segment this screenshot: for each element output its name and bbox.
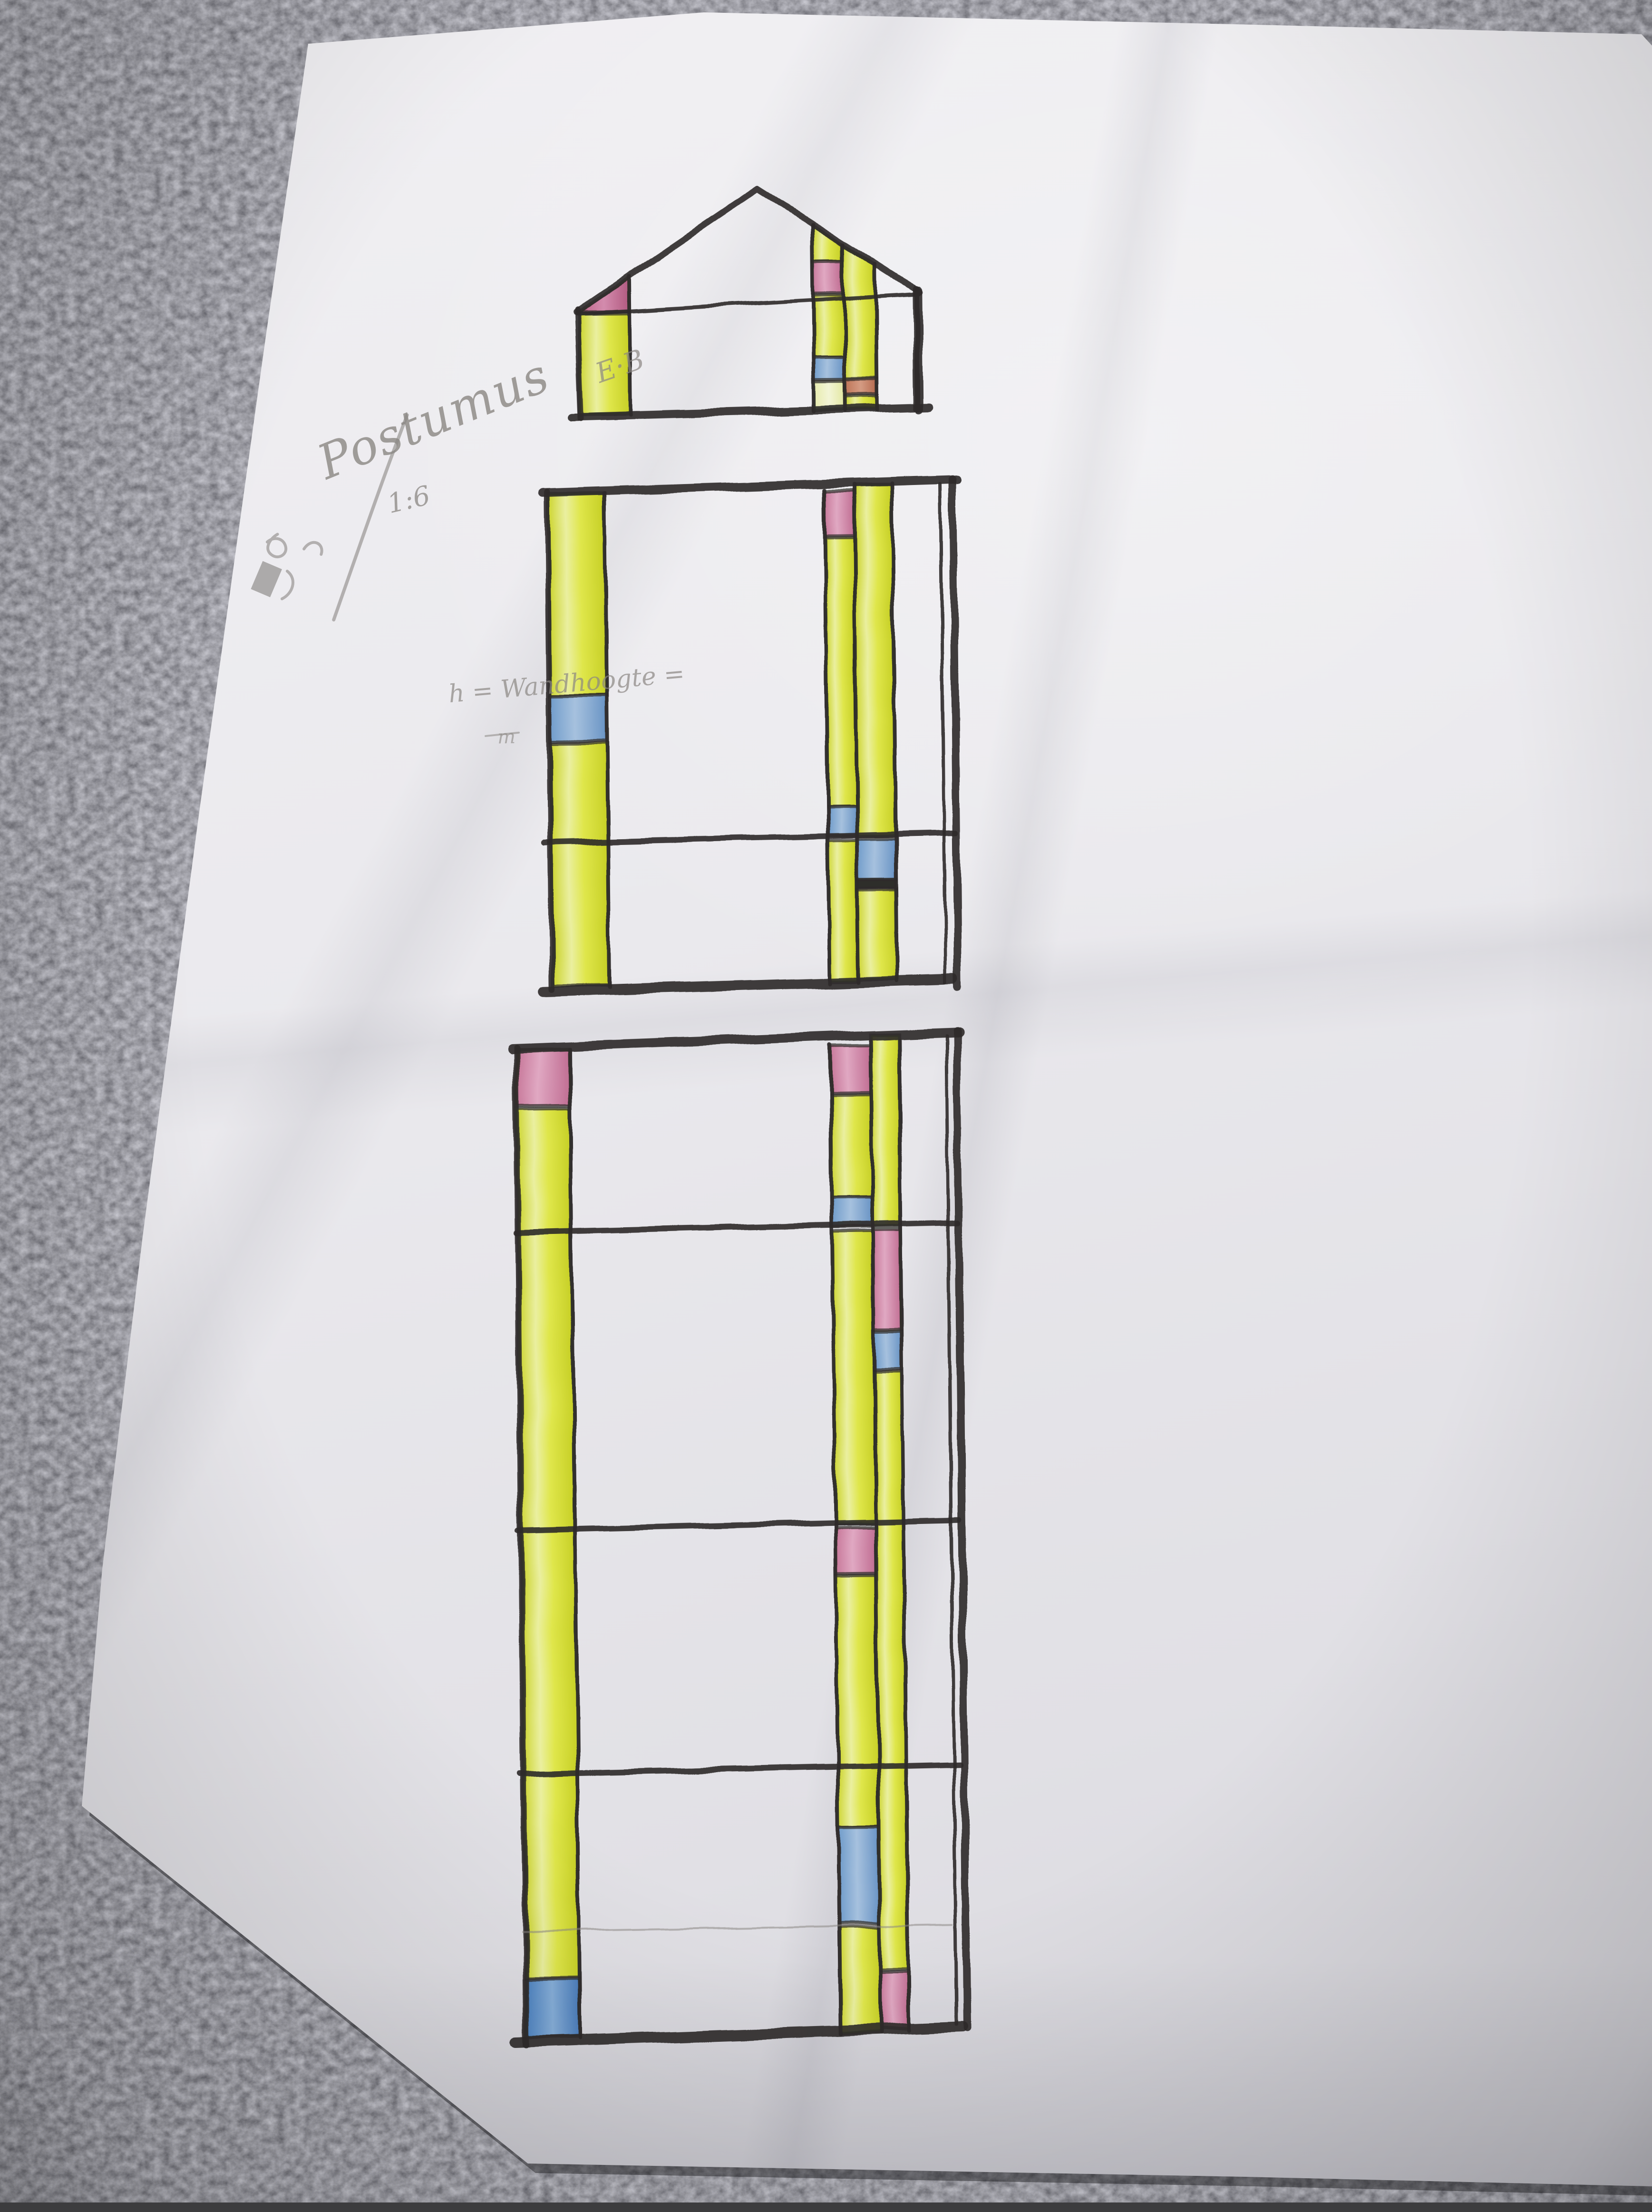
bottom-bottom-line	[516, 2027, 962, 2042]
glass-pane-yellow	[813, 295, 844, 358]
bottom-right-outer-line	[957, 1030, 967, 2028]
signature-script: Postumus	[309, 347, 557, 491]
middle-section	[539, 479, 962, 992]
glass-pane-pink	[825, 490, 855, 536]
glass-pane-yellow	[548, 493, 606, 695]
glass-pane-yellow	[831, 1095, 872, 1198]
gable-panes	[578, 225, 877, 415]
middle-panes	[548, 485, 897, 987]
gable-mullion	[875, 265, 877, 410]
glass-pane-yellow	[854, 485, 896, 837]
middle-right-outer-line	[952, 479, 958, 988]
glass-pane-blue	[814, 357, 845, 379]
glass-pane-blue	[550, 695, 607, 742]
stained-glass-design: Postumus E·B 1:6 h = Wandhoogte = m	[0, 0, 1652, 2202]
bottom-section	[506, 1030, 969, 2045]
doodle-stroke	[282, 571, 293, 599]
glass-pane-blue	[838, 1827, 880, 1924]
glass-pane-pink	[880, 1971, 909, 2029]
doodle-stroke	[304, 542, 322, 554]
glass-pane-lead	[858, 880, 896, 889]
doodle-stroke	[267, 534, 286, 557]
glass-pane-yellow	[825, 538, 857, 807]
glass-pane-salmon	[845, 378, 876, 395]
glass-pane-pink	[516, 1049, 570, 1106]
glass-pane-pink	[836, 1528, 876, 1574]
glass-pane-blue_deep	[525, 1979, 580, 2037]
doodle-shaded-square	[251, 561, 282, 597]
glass-pane-pink	[830, 1046, 871, 1094]
left-wall-line	[577, 310, 581, 418]
glass-pane-yellow	[828, 840, 859, 981]
glass-pane-yellow	[832, 1231, 875, 1524]
pencil-doodle	[250, 534, 323, 600]
glass-pane-yellow	[858, 889, 897, 979]
gable-mullion	[915, 289, 917, 408]
gable-mullion	[812, 224, 814, 411]
scale-ratio-note: 1:6	[384, 480, 433, 520]
gable-section	[570, 187, 929, 418]
glass-pane-yellow	[871, 1034, 901, 1227]
photo-scene: Postumus E·B 1:6 h = Wandhoogte = m	[0, 0, 1652, 2202]
gable-mullion	[843, 245, 845, 411]
glass-pane-blue	[874, 1331, 902, 1369]
glass-pane-blue	[828, 807, 858, 836]
middle-top-line	[543, 479, 957, 493]
glass-pane-pink	[813, 262, 844, 293]
glass-pane-yellow	[839, 1927, 881, 2033]
glass-pane-yellow	[551, 743, 609, 986]
unit-note: m	[497, 726, 516, 748]
middle-right-inner-line	[941, 484, 946, 983]
glass-pane-yellow	[836, 1575, 879, 1827]
glass-pane-blue	[857, 839, 896, 880]
glass-pane-pink	[873, 1230, 902, 1330]
